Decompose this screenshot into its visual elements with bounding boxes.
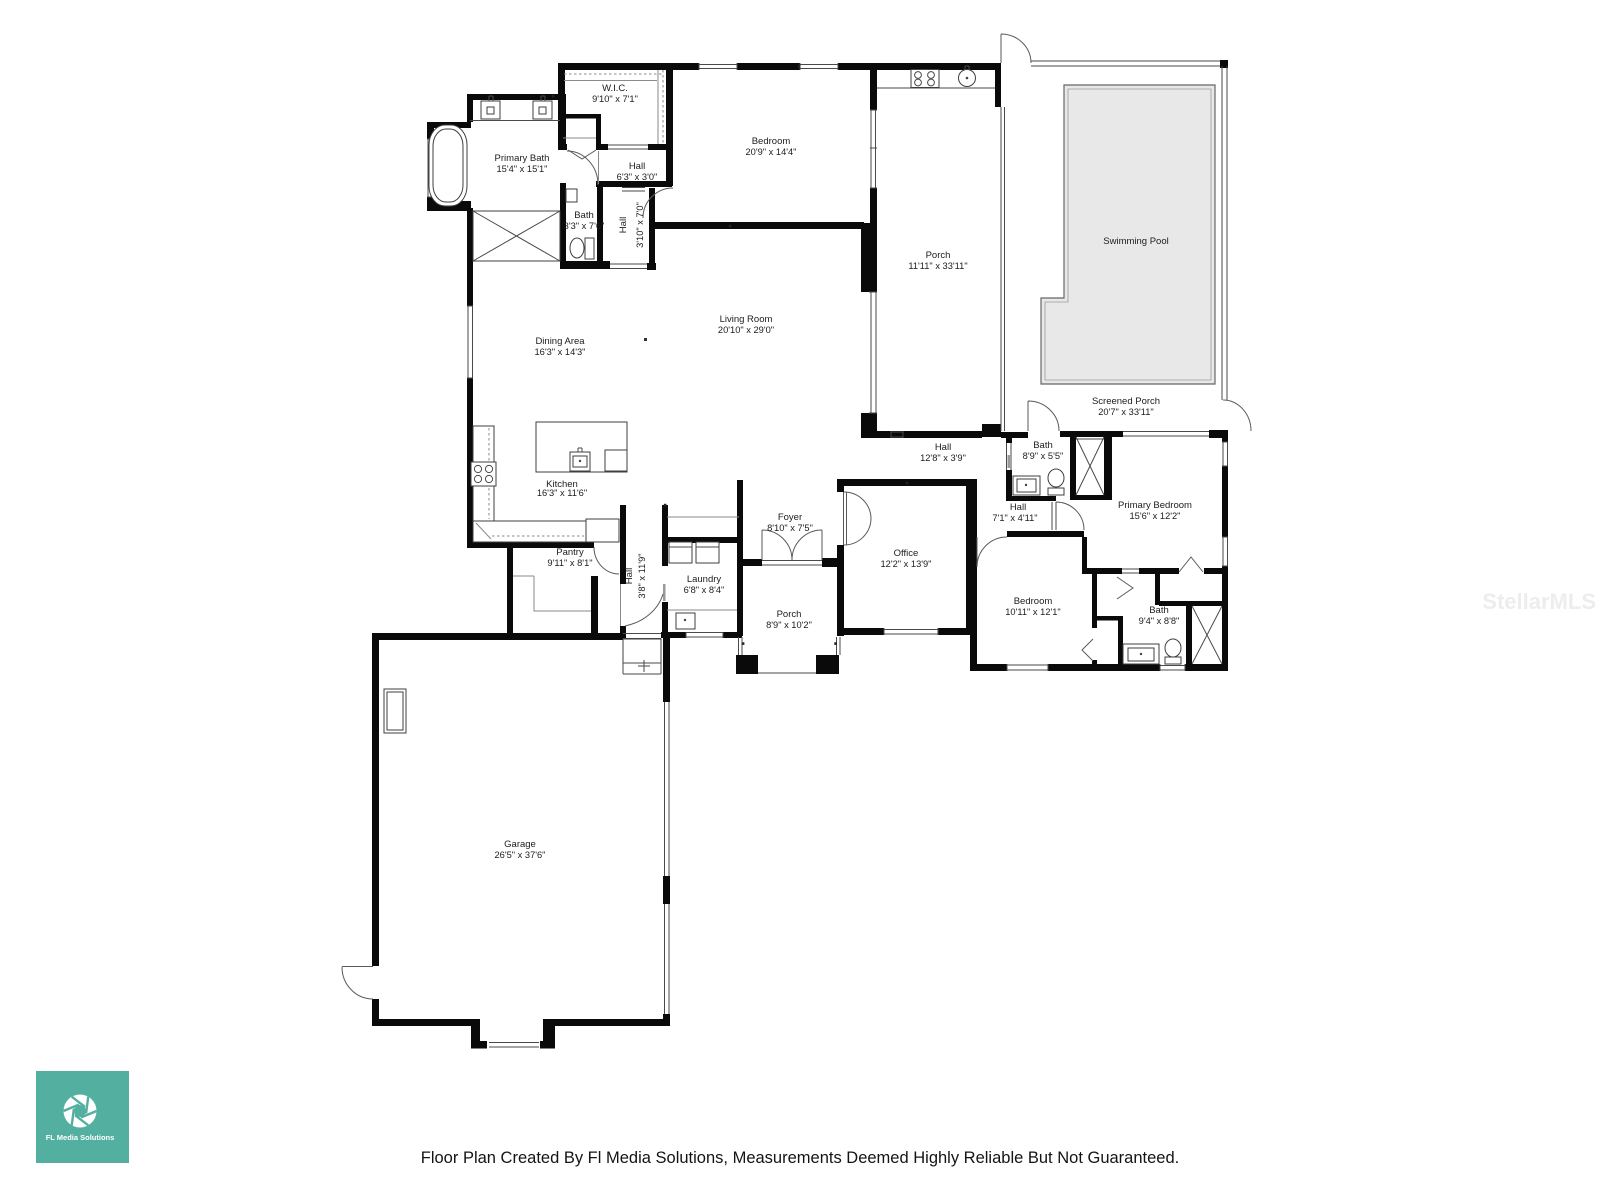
svg-text:20'10" x 29'0": 20'10" x 29'0" [718, 325, 774, 335]
svg-text:Bath: Bath [574, 210, 594, 221]
svg-text:Office: Office [894, 548, 919, 559]
svg-text:Floor Plan Created By Fl Media: Floor Plan Created By Fl Media Solutions… [421, 1149, 1179, 1167]
svg-text:16'3" x 11'6": 16'3" x 11'6" [537, 488, 587, 498]
svg-text:3'8" x 11'9": 3'8" x 11'9" [637, 553, 647, 598]
svg-text:8'9" x 5'5": 8'9" x 5'5" [1023, 451, 1064, 461]
svg-text:Bath: Bath [1149, 605, 1169, 616]
svg-text:Hall: Hall [624, 568, 635, 584]
svg-text:Hall: Hall [629, 161, 645, 172]
svg-text:9'10" x 7'1": 9'10" x 7'1" [592, 94, 638, 104]
svg-text:3'10" x 7'0": 3'10" x 7'0" [635, 202, 645, 248]
svg-text:Swimming Pool: Swimming Pool [1103, 236, 1168, 247]
svg-text:15'6" x 12'2": 15'6" x 12'2" [1130, 511, 1181, 521]
svg-text:Bedroom: Bedroom [1014, 596, 1053, 607]
svg-text:Pantry: Pantry [556, 547, 584, 558]
svg-text:6'8" x 8'4": 6'8" x 8'4" [684, 585, 725, 595]
svg-text:Garage: Garage [504, 839, 536, 850]
svg-text:Living Room: Living Room [720, 314, 773, 325]
svg-text:Laundry: Laundry [687, 574, 722, 585]
svg-text:Hall: Hall [618, 217, 629, 233]
svg-text:9'11" x 8'1": 9'11" x 8'1" [547, 558, 592, 568]
svg-text:Primary Bedroom: Primary Bedroom [1118, 500, 1192, 511]
svg-text:11'11" x 33'11": 11'11" x 33'11" [908, 261, 967, 271]
svg-text:Bedroom: Bedroom [752, 136, 791, 147]
svg-text:FL Media Solutions: FL Media Solutions [46, 1133, 115, 1142]
svg-text:W.I.C.: W.I.C. [602, 83, 628, 94]
svg-text:26'5" x 37'6": 26'5" x 37'6" [495, 850, 546, 860]
svg-text:Hall: Hall [1010, 502, 1026, 513]
svg-text:3'3" x 7'6": 3'3" x 7'6" [564, 221, 605, 231]
svg-text:7'1" x 4'11": 7'1" x 4'11" [992, 513, 1037, 523]
svg-text:10'11" x 12'1": 10'11" x 12'1" [1005, 607, 1060, 617]
svg-text:20'7" x 33'11": 20'7" x 33'11" [1098, 407, 1153, 417]
svg-text:Porch: Porch [777, 609, 802, 620]
svg-text:Porch: Porch [926, 250, 951, 261]
svg-text:Bath: Bath [1033, 440, 1053, 451]
svg-text:Screened Porch: Screened Porch [1092, 396, 1160, 407]
svg-text:20'9" x 14'4": 20'9" x 14'4" [746, 147, 797, 157]
svg-text:12'8" x 3'9": 12'8" x 3'9" [920, 453, 966, 463]
svg-text:9'4" x 8'8": 9'4" x 8'8" [1139, 616, 1180, 626]
svg-text:Foyer: Foyer [778, 512, 802, 523]
svg-text:15'4" x 15'1": 15'4" x 15'1" [497, 164, 548, 174]
svg-text:16'3" x 14'3": 16'3" x 14'3" [535, 347, 586, 357]
svg-text:Hall: Hall [935, 442, 951, 453]
svg-text:StellarMLS: StellarMLS [1482, 589, 1596, 614]
svg-text:8'10" x 7'5": 8'10" x 7'5" [767, 523, 813, 533]
svg-text:12'2" x 13'9": 12'2" x 13'9" [881, 559, 932, 569]
svg-text:Primary Bath: Primary Bath [495, 153, 550, 164]
svg-text:Dining Area: Dining Area [535, 336, 585, 347]
svg-text:8'9" x 10'2": 8'9" x 10'2" [766, 620, 812, 630]
svg-text:6'3" x 3'0": 6'3" x 3'0" [617, 172, 658, 182]
